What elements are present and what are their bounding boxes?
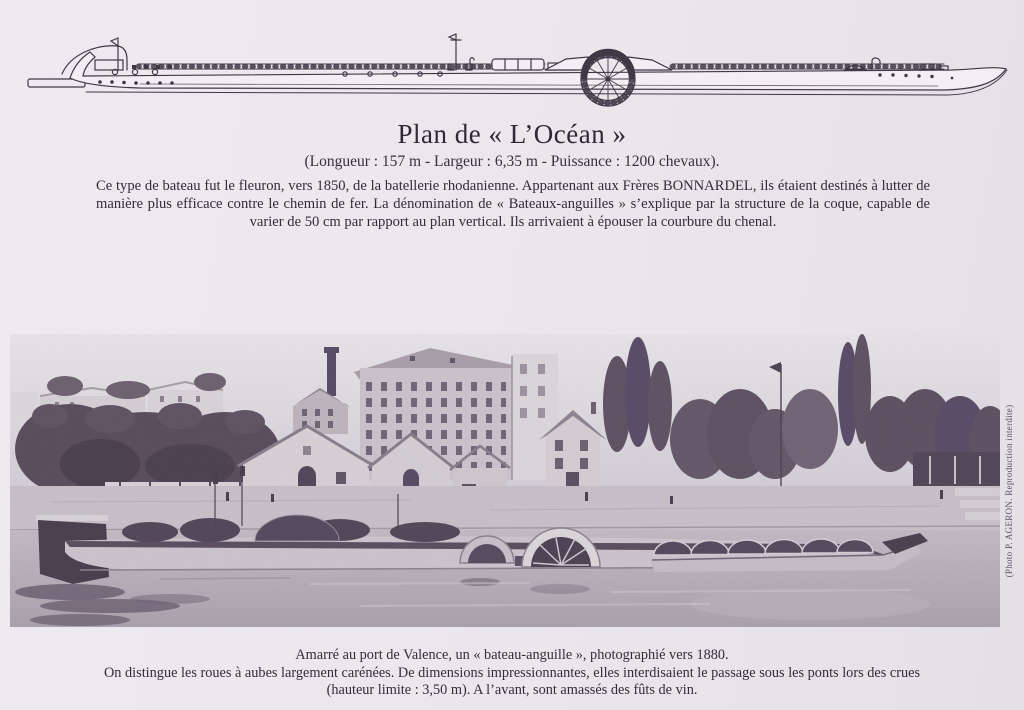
port-photograph bbox=[10, 333, 1000, 628]
page-title: Plan de « L’Océan » bbox=[0, 119, 1024, 150]
photo-caption-line1: Amarré au port de Valence, un « bateau-a… bbox=[0, 647, 1024, 664]
mast bbox=[448, 34, 474, 70]
photo-caption-body: On distingue les roues à aubes largement… bbox=[91, 665, 933, 700]
photo-caption: Amarré au port de Valence, un « bateau-a… bbox=[0, 647, 1024, 700]
boat-plan-drawing bbox=[0, 0, 1024, 112]
photo-grain bbox=[10, 334, 1000, 627]
photo-credit-vertical: (Photo P. AGERON. Reproduction interdite… bbox=[1004, 383, 1020, 599]
dimensions-subtitle: (Longueur : 157 m - Largeur : 6,35 m - P… bbox=[0, 153, 1024, 171]
paddle-wheel bbox=[581, 52, 635, 106]
intro-paragraph: Ce type de bateau fut le fleuron, vers 1… bbox=[96, 177, 930, 232]
engine-house-right bbox=[628, 57, 672, 70]
scanned-page: Plan de « L’Océan » (Longueur : 157 m - … bbox=[0, 0, 1024, 710]
